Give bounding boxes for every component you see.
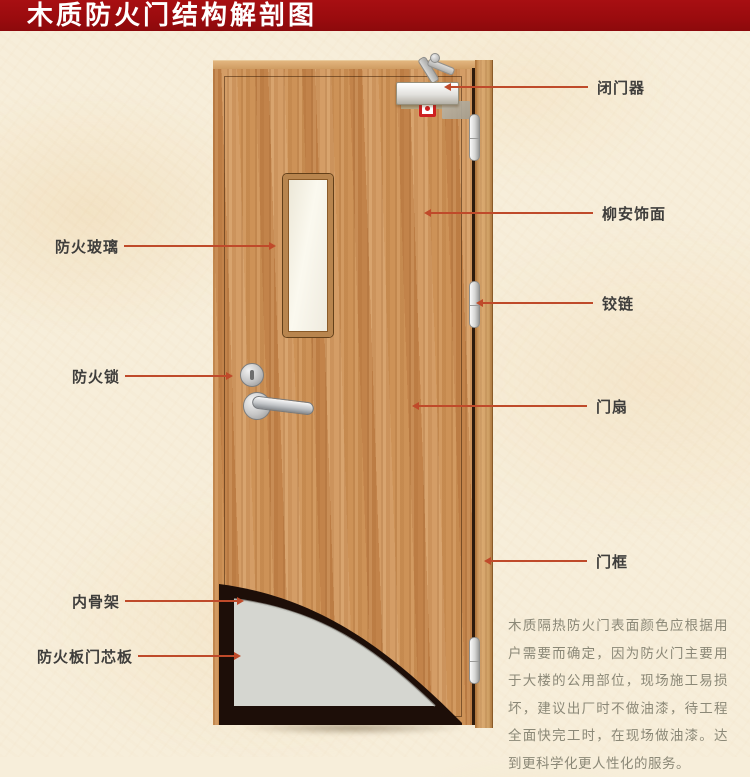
callout-door-frame-label: 门框: [596, 551, 628, 572]
callout-fire-lock-line: [125, 375, 227, 377]
callout-fire-lock-label: 防火锁: [72, 366, 120, 387]
hinge-bottom: [469, 637, 480, 684]
door-closer-elbow: [430, 53, 440, 63]
callout-core-board-label: 防火板门芯板: [37, 646, 133, 667]
callout-fire-glass: 防火玻璃: [55, 237, 270, 255]
callout-door-leaf: 门扇: [418, 397, 628, 415]
callout-inner-skeleton-label: 内骨架: [72, 591, 120, 612]
callout-hinge-line: [482, 302, 593, 304]
callout-door-closer-label: 闭门器: [597, 77, 645, 98]
product-description: 木质隔热防火门表面颜色应根据用户需要而确定，因为防火门主要用于大楼的公用部位，现…: [508, 612, 728, 777]
fireproof-core-board-area: [234, 599, 435, 706]
callout-fire-glass-label: 防火玻璃: [55, 236, 119, 257]
callout-door-leaf-label: 门扇: [596, 396, 628, 417]
callout-door-frame-line: [490, 560, 587, 562]
callout-veneer: 柳安饰面: [430, 204, 666, 222]
callout-door-frame: 门框: [490, 552, 628, 570]
hinge-top: [469, 114, 480, 161]
callout-veneer-label: 柳安饰面: [602, 203, 666, 224]
callout-inner-skeleton-line: [125, 600, 238, 602]
callout-hinge-label: 铰链: [602, 293, 634, 314]
callout-core-board-line: [138, 655, 235, 657]
callout-core-board: 防火板门芯板: [37, 647, 235, 665]
callout-inner-skeleton: 内骨架: [72, 592, 238, 610]
callout-door-closer-line: [450, 86, 588, 88]
door-shadow: [200, 723, 505, 739]
callout-door-leaf-line: [418, 405, 587, 407]
callout-fire-lock: 防火锁: [72, 367, 227, 385]
callout-fire-glass-line: [124, 245, 270, 247]
fire-lock-cylinder: [240, 363, 264, 387]
page-title: 木质防火门结构解剖图: [0, 0, 750, 31]
title-banner: 木质防火门结构解剖图: [0, 0, 750, 31]
callout-veneer-line: [430, 212, 593, 214]
callout-hinge: 铰链: [482, 294, 634, 312]
callout-door-closer: 闭门器: [450, 78, 645, 96]
